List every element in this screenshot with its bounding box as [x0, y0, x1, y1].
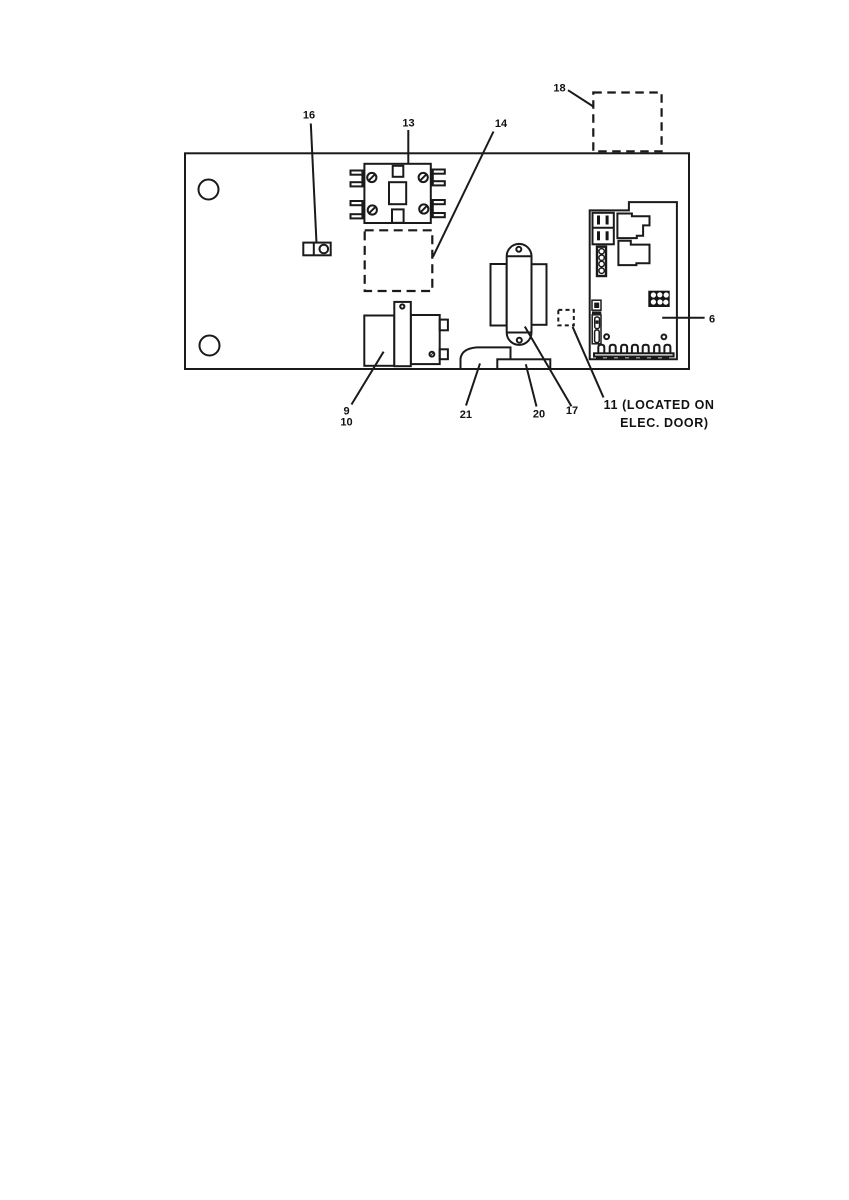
svg-text:11 (LOCATED ON: 11 (LOCATED ON [604, 398, 715, 412]
svg-text:21: 21 [460, 409, 472, 421]
svg-text:ELEC. DOOR): ELEC. DOOR) [620, 416, 709, 430]
svg-text:13: 13 [402, 118, 414, 130]
svg-text:18: 18 [553, 83, 565, 95]
svg-text:6: 6 [709, 314, 715, 326]
svg-text:14: 14 [495, 118, 508, 130]
svg-text:16: 16 [303, 110, 315, 122]
svg-text:10: 10 [340, 417, 352, 429]
svg-text:20: 20 [533, 409, 545, 421]
svg-text:17: 17 [566, 405, 578, 417]
